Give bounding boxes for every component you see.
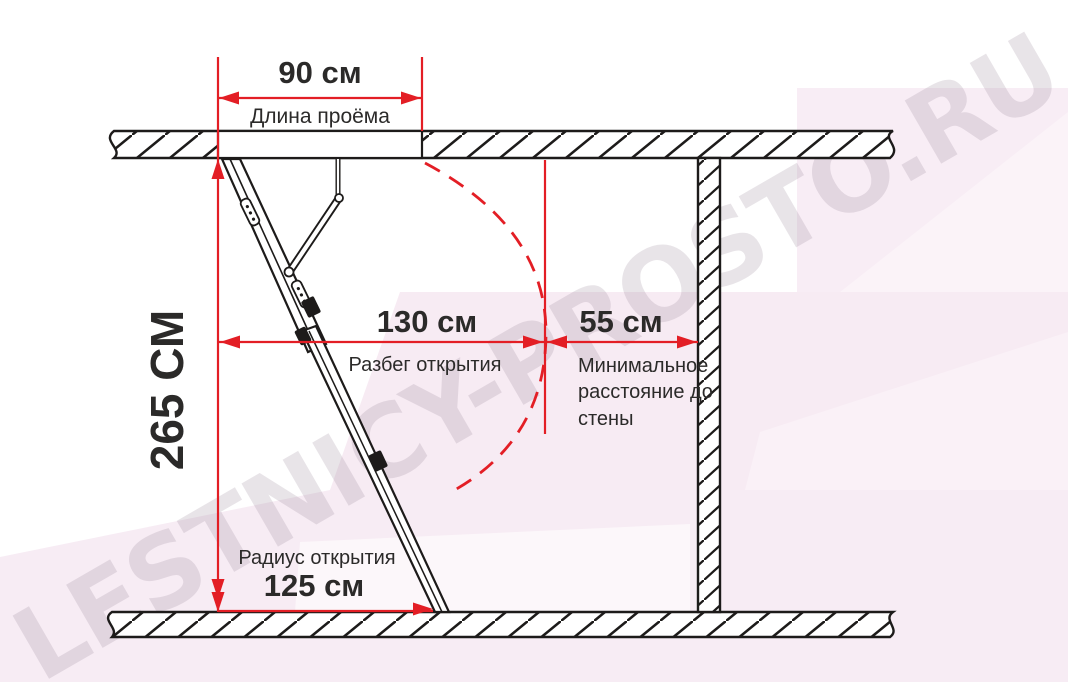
strut-pivot-bottom [285, 268, 294, 277]
arrow-55-left [547, 336, 567, 349]
spring-strut [290, 198, 339, 271]
arrow-90-left [219, 92, 239, 105]
arrow-130-right [523, 336, 543, 349]
floor-slab [108, 612, 894, 637]
ladder-lower-inner-line [309, 331, 442, 612]
wall [698, 158, 720, 612]
attic-ladder-dimension-diagram: LESTNICY-PROSTO.RU [0, 0, 1068, 682]
dimension-arrowheads [212, 92, 698, 616]
ladder-drawing [0, 0, 1068, 682]
opening-swing-arc [425, 163, 546, 491]
ceiling-opening [218, 131, 422, 158]
arrow-90-right [401, 92, 421, 105]
folding-ladder [222, 159, 449, 612]
arrow-55-right [677, 336, 697, 349]
strut-pivot-top [335, 194, 343, 202]
arrow-130-left [220, 336, 240, 349]
